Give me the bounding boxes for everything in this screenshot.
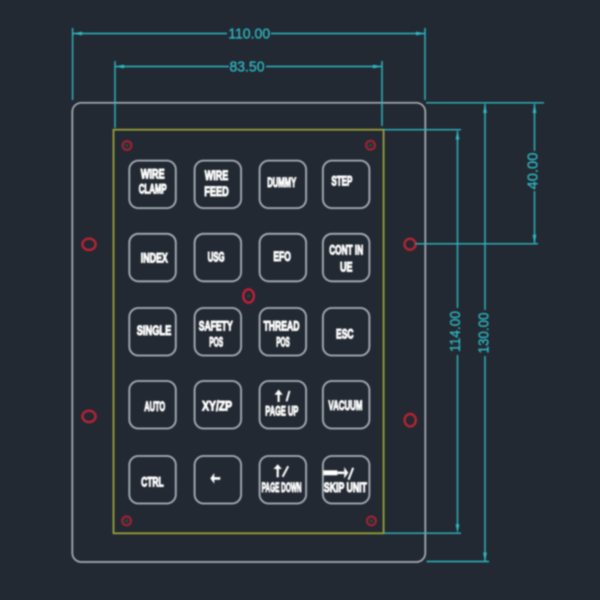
svg-text:40.00: 40.00 [526, 153, 542, 190]
svg-text:PAGE DOWN: PAGE DOWN [262, 479, 302, 495]
svg-text:SAFETY: SAFETY [199, 317, 233, 333]
svg-text:FEED: FEED [204, 183, 229, 199]
svg-text:110.00: 110.00 [228, 27, 270, 43]
svg-text:STEP: STEP [331, 173, 352, 189]
svg-text:CONT IN: CONT IN [329, 242, 363, 258]
svg-text:SKIP UNIT: SKIP UNIT [324, 479, 367, 495]
svg-text:XY/ZP: XY/ZP [202, 398, 232, 414]
svg-text:DUMMY: DUMMY [267, 174, 296, 190]
svg-text:83.50: 83.50 [230, 60, 265, 76]
svg-text:CTRL: CTRL [141, 473, 164, 489]
svg-text:INDEX: INDEX [141, 250, 168, 266]
svg-text:VACUUM: VACUUM [328, 397, 362, 413]
svg-text:114.00: 114.00 [448, 311, 464, 352]
svg-text:THREAD: THREAD [264, 317, 300, 333]
svg-text:UE: UE [340, 258, 353, 274]
svg-text:USG: USG [208, 248, 225, 264]
svg-text:ESC: ESC [336, 326, 354, 342]
svg-text:CLAMP: CLAMP [139, 181, 167, 197]
svg-text:POS: POS [209, 334, 223, 350]
svg-text:130.00: 130.00 [477, 313, 493, 354]
svg-text:AUTO: AUTO [144, 398, 165, 414]
svg-text:PAGE UP: PAGE UP [265, 403, 298, 419]
svg-text:SINGLE: SINGLE [137, 322, 172, 338]
svg-text:EFO: EFO [273, 248, 291, 264]
svg-text:WIRE: WIRE [205, 167, 229, 183]
svg-text:POS: POS [276, 334, 290, 350]
svg-text:WIRE: WIRE [141, 166, 165, 182]
